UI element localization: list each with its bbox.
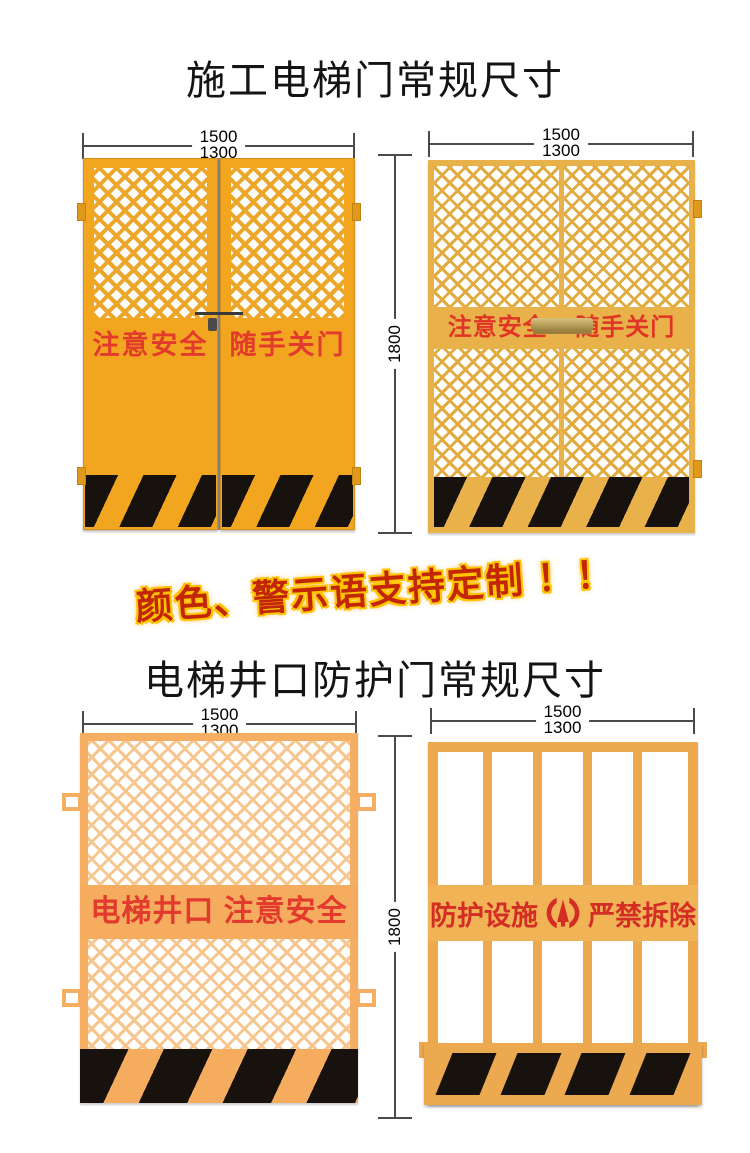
shaft-gate-right: 防护设施 严禁拆除 bbox=[428, 742, 698, 1105]
dimension-tick bbox=[378, 532, 412, 534]
dim-height-construction: 1800 bbox=[378, 154, 412, 534]
dim-width-construction-right: 1500 1300 bbox=[428, 127, 694, 161]
mount-loop bbox=[62, 989, 82, 1007]
product-detail-image: 施工电梯门常规尺寸 1500 1300 1500 1300 注意安全 bbox=[0, 0, 750, 1153]
dim-width-shaft-right: 1500 1300 bbox=[430, 704, 695, 738]
mount-loop bbox=[62, 793, 82, 811]
hazard-stripes bbox=[85, 475, 216, 527]
dimension-values: 1500 1300 bbox=[192, 129, 246, 161]
dimension-tick bbox=[378, 1117, 412, 1119]
dim-height-shaft: 1800 bbox=[378, 735, 412, 1119]
dimension-tick bbox=[82, 133, 84, 159]
latch-icon bbox=[531, 318, 593, 331]
dimension-values: 1500 1300 bbox=[534, 127, 588, 159]
builder-emblem-icon bbox=[545, 895, 581, 931]
mesh-screen bbox=[94, 168, 207, 318]
dimension-tick bbox=[378, 735, 412, 737]
inner-width-value: 1300 bbox=[544, 720, 582, 736]
hinge-tab bbox=[693, 200, 702, 218]
hazard-baseboard bbox=[424, 1043, 702, 1105]
section1-title: 施工电梯门常规尺寸 bbox=[0, 48, 750, 106]
gate-slogan: 防护设施 bbox=[430, 894, 538, 933]
mesh-screen bbox=[231, 168, 344, 318]
dimension-tick bbox=[430, 708, 432, 734]
construction-door-right: 注意安全 随手关门 bbox=[428, 160, 695, 533]
dimension-tick bbox=[378, 154, 412, 156]
door-panel-left: 注意安全 bbox=[83, 158, 218, 530]
hazard-stripes bbox=[434, 477, 689, 527]
hazard-stripes bbox=[222, 475, 353, 527]
hazard-stripe bbox=[629, 1053, 690, 1095]
dimension-values: 1500 1300 bbox=[536, 704, 590, 736]
hinge-tab bbox=[352, 203, 361, 221]
hinge-tab bbox=[352, 467, 361, 485]
section2-title: 电梯井口防护门常规尺寸 bbox=[0, 648, 750, 706]
door-panel-right: 随手关门 bbox=[220, 158, 355, 530]
door-slogan: 注意安全 bbox=[84, 323, 217, 362]
latch-icon bbox=[195, 312, 243, 315]
slogan-band: 防护设施 严禁拆除 bbox=[428, 885, 698, 941]
hazard-stripe bbox=[436, 1053, 497, 1095]
mount-loop bbox=[356, 989, 376, 1007]
hinge-tab bbox=[693, 460, 702, 478]
inner-width-value: 1300 bbox=[542, 143, 580, 159]
dimension-tick bbox=[353, 133, 355, 159]
shaft-gate-left: 电梯井口 注意安全 bbox=[80, 733, 358, 1103]
customization-banner: 颜色、警示语支持定制 ！！ bbox=[0, 534, 750, 640]
hazard-stripes bbox=[80, 1049, 358, 1103]
hazard-stripe bbox=[565, 1053, 626, 1095]
height-value: 1800 bbox=[385, 319, 405, 369]
dimension-tick bbox=[693, 708, 695, 734]
hinge-tab bbox=[77, 203, 86, 221]
padlock-icon bbox=[208, 318, 217, 331]
dimension-tick bbox=[428, 131, 430, 157]
slogan-band: 电梯井口 注意安全 bbox=[80, 885, 358, 939]
dimension-tick bbox=[692, 131, 694, 157]
hinge-tab bbox=[77, 467, 86, 485]
door-slogan: 随手关门 bbox=[221, 323, 354, 362]
gate-slogan: 严禁拆除 bbox=[588, 894, 696, 933]
mount-loop bbox=[356, 793, 376, 811]
height-value: 1800 bbox=[385, 902, 405, 952]
hazard-stripe bbox=[500, 1053, 561, 1095]
construction-door-left: 注意安全 随手关门 bbox=[83, 158, 355, 530]
